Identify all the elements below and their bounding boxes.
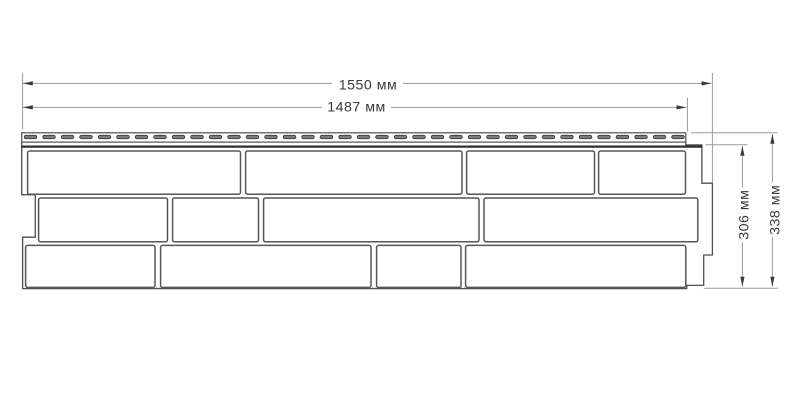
svg-text:338 мм: 338 мм: [767, 185, 783, 235]
svg-text:306 мм: 306 мм: [737, 190, 753, 240]
svg-text:1550 мм: 1550 мм: [339, 77, 398, 93]
svg-text:1487 мм: 1487 мм: [327, 100, 386, 116]
